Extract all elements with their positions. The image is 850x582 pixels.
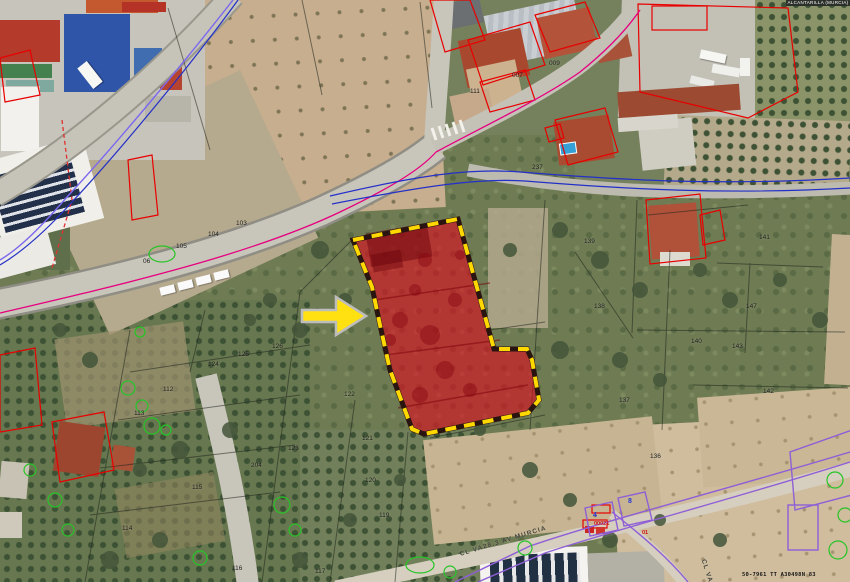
municipality-strip: ALCANTARILLA (MURCIA): [786, 0, 850, 6]
map-sheet-reference: 50-7961 TT A30498N 83: [742, 572, 816, 578]
satellite-map[interactable]: 1051041030611100700923712212112320412011…: [0, 0, 850, 582]
road-vertical-north: [434, 0, 444, 146]
road-top-left-diagonal-surface: [0, 0, 233, 195]
pointer-arrow: [302, 297, 366, 335]
cadastral-purple-lines: [455, 430, 850, 582]
map-overlay: [0, 0, 850, 582]
